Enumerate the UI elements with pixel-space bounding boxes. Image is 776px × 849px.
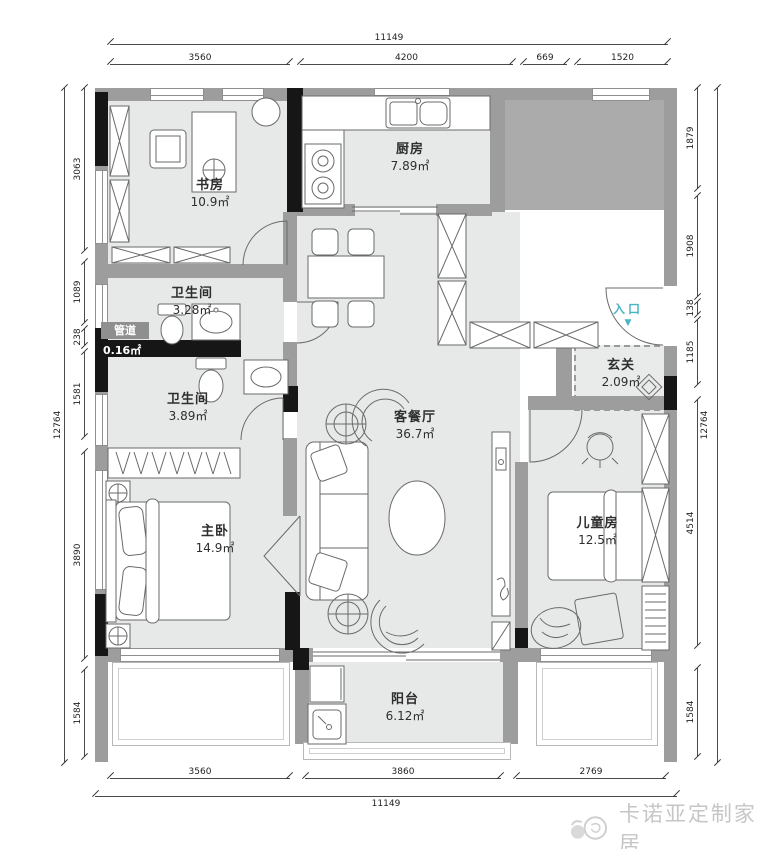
entrance-label: 入口 xyxy=(596,300,660,317)
entrance-arrow-icon: ▼ xyxy=(596,319,660,328)
dim-left-seg: 1584 xyxy=(84,670,85,756)
dim-top-total: 11149 xyxy=(110,44,668,45)
duct-area-label: 0.16㎡ xyxy=(103,342,141,358)
bath2-door-icon xyxy=(241,398,283,440)
brand-logo-icon xyxy=(568,811,611,845)
kids-rug-icon xyxy=(574,593,623,646)
bath2-sink-icon xyxy=(244,360,288,394)
dim-right-seg: 4514 xyxy=(697,400,698,645)
hall-cabinet-icon xyxy=(438,214,598,348)
dim-left-seg: 238 xyxy=(84,329,85,345)
room-label-master: 主卧14.9㎡ xyxy=(160,524,270,556)
dim-left-total: 12764 xyxy=(64,88,65,762)
dim-right-total: 12764 xyxy=(717,88,718,762)
dim-right-seg: 1879 xyxy=(697,88,698,188)
floor-plan-canvas: 11149 3560 4200 669 1520 3560 3860 2769 … xyxy=(0,0,776,849)
room-label-balcony: 阳台6.12㎡ xyxy=(355,692,455,724)
dim-right-seg: 1584 xyxy=(697,668,698,756)
dim-top-seg: 1520 xyxy=(577,64,668,65)
room-label-kitchen: 厨房7.89㎡ xyxy=(355,142,465,174)
watermark-text: 卡诺亚定制家居 xyxy=(619,798,776,849)
balcony-laundry-icon xyxy=(308,666,346,744)
kids-wardrobe-icon xyxy=(642,414,669,650)
room-label-kids: 儿童房12.5㎡ xyxy=(550,516,645,548)
room-label-study: 书房10.9㎡ xyxy=(150,178,270,210)
dim-top-seg: 3560 xyxy=(110,64,290,65)
dim-left-seg: 1581 xyxy=(84,352,85,436)
entrance-marker: 入口 ▼ xyxy=(596,300,660,328)
duct-name-box: 管道 xyxy=(101,322,149,339)
kids-stool-icon xyxy=(582,433,618,468)
dim-left-seg: 3890 xyxy=(84,452,85,658)
dim-top-seg: 669 xyxy=(523,64,567,65)
master-wardrobe-icon xyxy=(108,448,240,478)
kitchen-stove-icon xyxy=(305,144,341,204)
dim-bottom-total: 11149 xyxy=(95,796,677,797)
room-label-bath2: 卫生间3.89㎡ xyxy=(143,392,233,424)
study-lamp-icon xyxy=(252,98,280,126)
dim-bottom-seg: 3560 xyxy=(110,778,290,779)
sofa-icon xyxy=(306,442,368,600)
dim-bottom-seg: 3860 xyxy=(305,778,501,779)
kids-door-icon xyxy=(530,410,582,462)
tv-cabinet-icon xyxy=(492,432,510,650)
coffee-table-icon xyxy=(389,481,445,555)
watermark: 卡诺亚定制家居 xyxy=(568,798,776,849)
dim-left-seg: 3063 xyxy=(84,88,85,250)
dim-left-seg: 1089 xyxy=(84,262,85,322)
room-label-bath1: 卫生间3.28㎡ xyxy=(147,286,237,318)
dim-right-seg: 1908 xyxy=(697,196,698,296)
room-label-living: 客餐厅36.7㎡ xyxy=(360,410,470,442)
kitchen-slider-icon xyxy=(352,207,438,214)
dim-bottom-seg: 2769 xyxy=(516,778,666,779)
room-label-foyer: 玄关2.09㎡ xyxy=(576,358,666,390)
dim-top-seg: 4200 xyxy=(300,64,513,65)
dim-right-seg: 1185 xyxy=(697,320,698,384)
master-bed-icon xyxy=(106,499,230,623)
study-door-icon xyxy=(243,221,287,265)
armchair-icon xyxy=(371,600,424,653)
dining-set-icon xyxy=(308,229,384,327)
dim-right-seg: 138 xyxy=(697,302,698,314)
